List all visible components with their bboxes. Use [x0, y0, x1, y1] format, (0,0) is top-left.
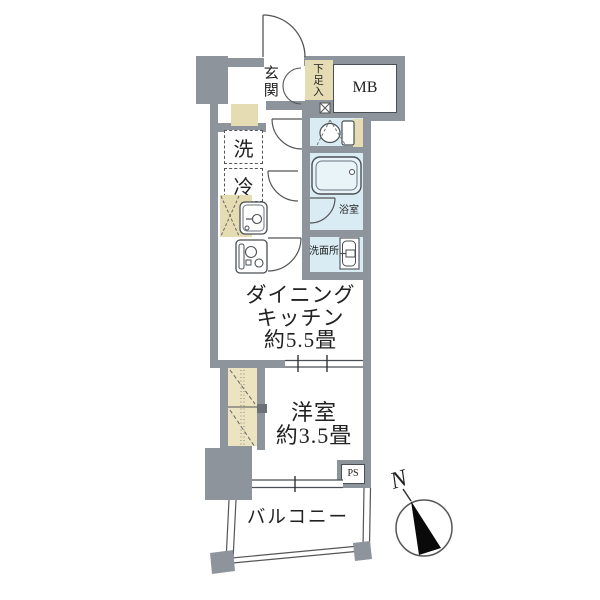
- dining-kitchen-size: 約5.5畳: [228, 329, 373, 352]
- balcony-corner-right: [353, 541, 372, 561]
- western-room-line1: 洋室: [248, 401, 380, 424]
- meter-box-label: MB: [333, 64, 397, 113]
- bathroom-label: 浴室: [339, 206, 359, 217]
- shoe-storage-label: 下足入: [312, 63, 323, 98]
- hallway-door-upper: [272, 119, 302, 149]
- pipe-space-label: PS: [341, 464, 365, 484]
- sliding-door: [285, 355, 363, 372]
- kitchen-sink-fixture: [220, 195, 267, 237]
- dk-door: [268, 238, 301, 271]
- stove-fixture: [236, 240, 267, 273]
- hallway-door-middle: [268, 171, 298, 201]
- dining-kitchen-line2: キッチン: [228, 307, 373, 330]
- washroom-label: 洗面所: [309, 247, 339, 258]
- floor-plan: 洗 冷: [0, 0, 600, 600]
- balcony-corner-left: [210, 550, 235, 574]
- bathroom-door: [310, 198, 335, 223]
- compass: [396, 489, 452, 556]
- toilet-fixture: [317, 119, 363, 147]
- shoe-cabinet-doors: [283, 68, 301, 104]
- entrance-door: [263, 15, 305, 57]
- bathtub-fixture: [312, 157, 361, 194]
- alarm-box-icon: [320, 103, 330, 113]
- western-room-label: 洋室 約3.5畳: [248, 401, 380, 447]
- balcony-label: バルコニー: [228, 509, 368, 528]
- dining-kitchen-line1: ダイニング: [228, 284, 373, 307]
- western-room-size: 約3.5畳: [248, 424, 380, 447]
- balcony-window: [252, 476, 343, 492]
- vanity-sink-fixture: [340, 238, 359, 269]
- dining-kitchen-label: ダイニング キッチン 約5.5畳: [228, 284, 373, 352]
- entrance-label: 玄関: [261, 65, 277, 99]
